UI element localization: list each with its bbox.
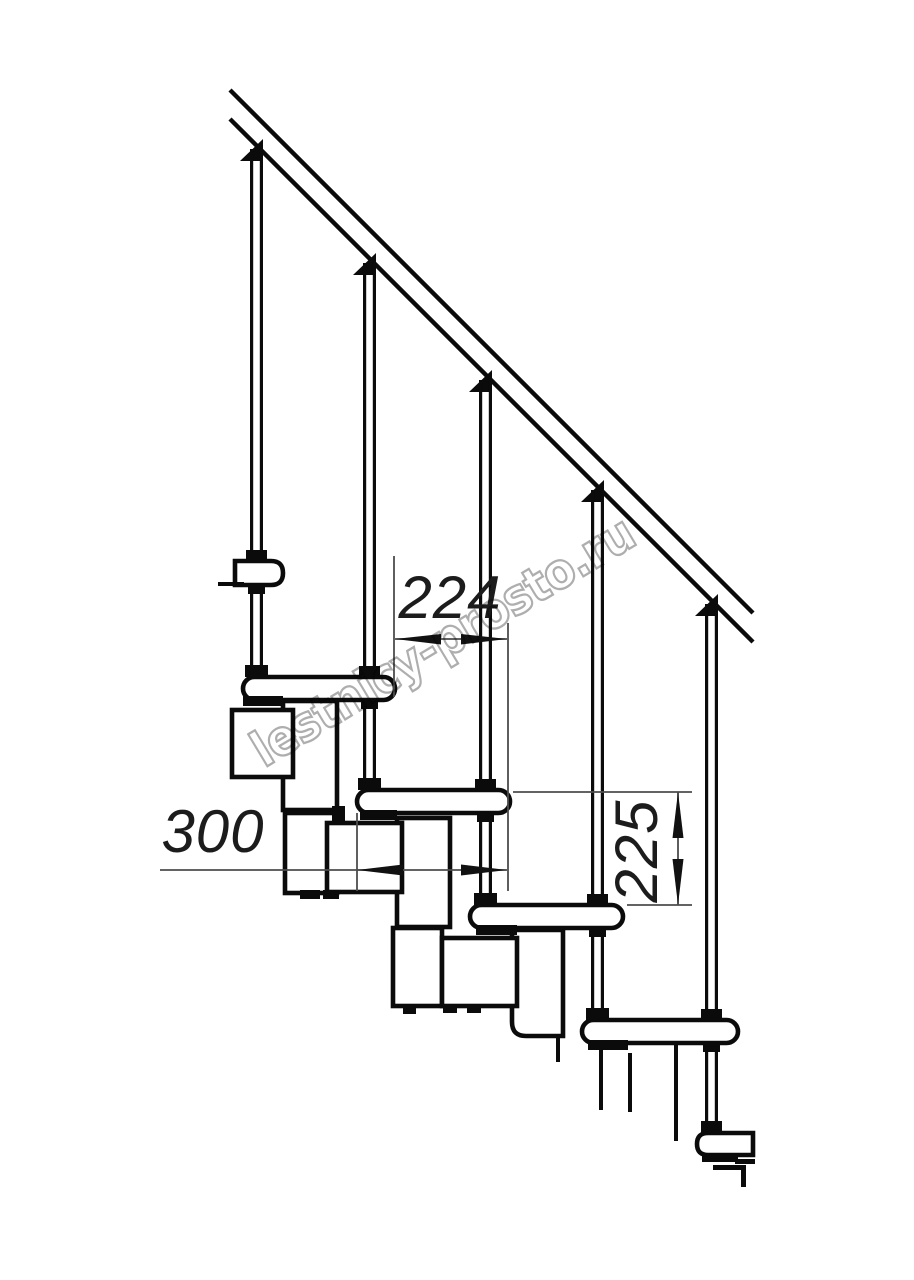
baluster bbox=[365, 263, 375, 800]
module-block bbox=[397, 818, 450, 927]
staircase-drawing bbox=[0, 0, 914, 1280]
dimension-label-tread-depth: 300 bbox=[150, 802, 276, 862]
baluster bbox=[593, 490, 603, 1030]
tread bbox=[470, 905, 623, 928]
module-block bbox=[512, 930, 563, 1036]
technical-drawing: 224 300 225 lestnicy-prosto.ru bbox=[0, 0, 914, 1280]
tread bbox=[697, 1133, 753, 1155]
module-block bbox=[442, 938, 517, 1006]
baluster bbox=[707, 604, 717, 1140]
module-block bbox=[393, 928, 442, 1006]
dimension-label-step-rise: 225 bbox=[606, 786, 668, 916]
tread bbox=[357, 790, 510, 813]
baluster bbox=[252, 149, 262, 690]
tread bbox=[582, 1020, 738, 1043]
baluster bbox=[481, 380, 491, 915]
module-block bbox=[327, 823, 402, 892]
module-block bbox=[232, 710, 293, 777]
dimension-label-step-run: 224 bbox=[385, 568, 515, 628]
tread bbox=[235, 561, 283, 585]
